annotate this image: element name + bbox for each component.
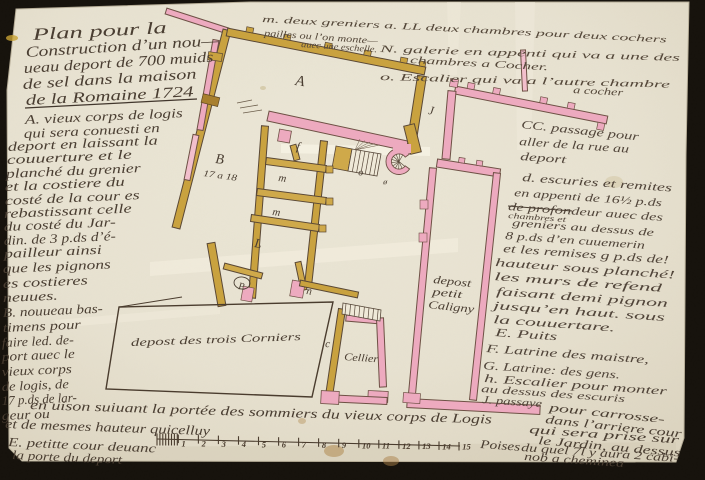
svg-text:15: 15 xyxy=(462,442,471,452)
svg-text:8: 8 xyxy=(322,440,327,450)
svg-text:P.: P. xyxy=(237,281,247,293)
svg-text:11: 11 xyxy=(382,441,390,451)
svg-text:9: 9 xyxy=(342,440,347,450)
svg-text:12: 12 xyxy=(402,441,411,451)
svg-text:1: 1 xyxy=(182,438,186,448)
svg-text:Poises: Poises xyxy=(479,437,522,454)
svg-text:5: 5 xyxy=(262,439,267,449)
svg-text:6: 6 xyxy=(282,440,287,450)
svg-text:c: c xyxy=(325,338,331,350)
svg-text:3: 3 xyxy=(221,439,227,449)
svg-text:14: 14 xyxy=(442,441,451,451)
svg-text:10: 10 xyxy=(362,441,371,451)
svg-text:2: 2 xyxy=(201,439,207,449)
svg-text:7: 7 xyxy=(302,440,307,450)
svg-text:4: 4 xyxy=(241,439,246,449)
svg-text:13: 13 xyxy=(422,441,431,451)
